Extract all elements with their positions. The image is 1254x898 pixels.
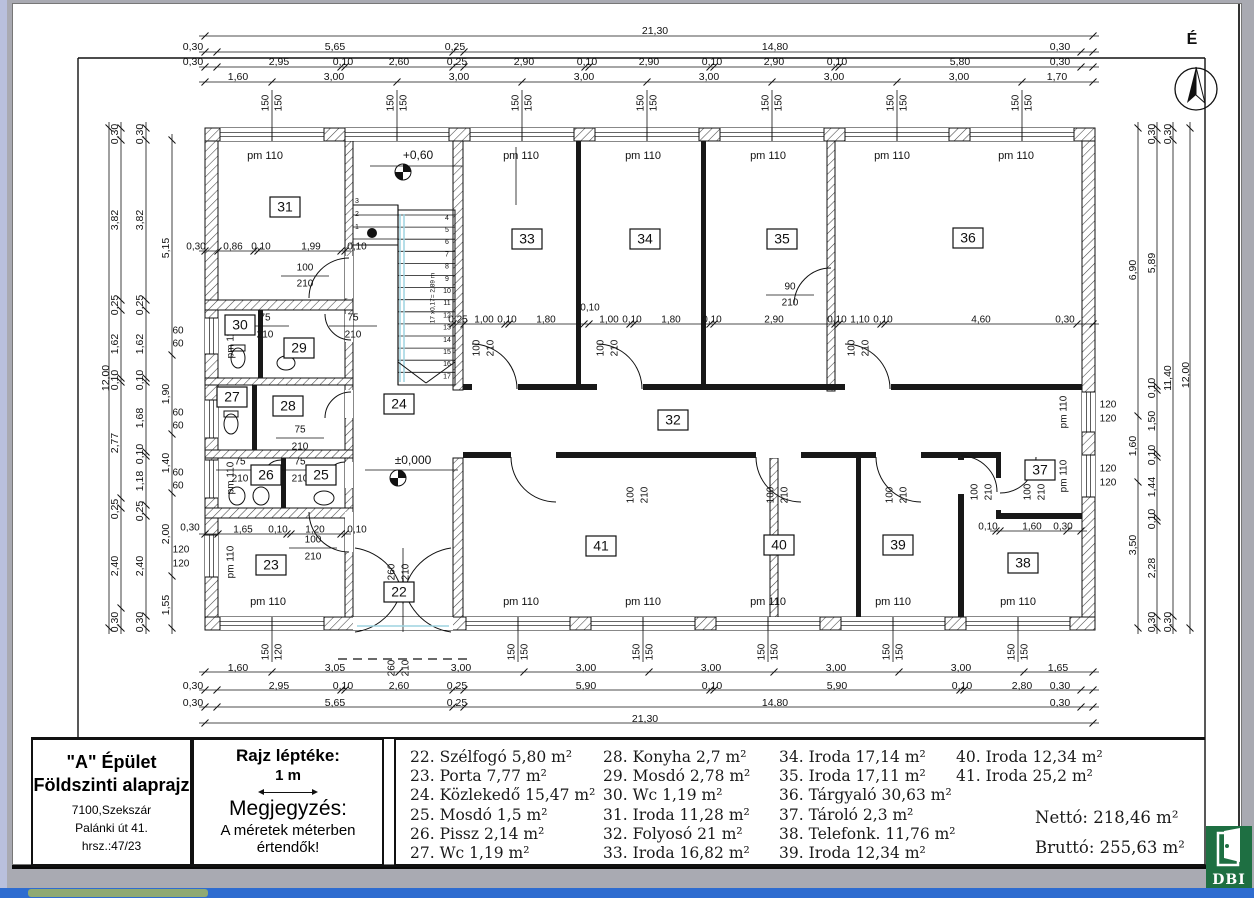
dim-label: 3,00 — [826, 662, 847, 674]
dim-label: 100 — [970, 483, 981, 500]
dim-label: 60 — [172, 408, 184, 419]
dim-label: 3,00 — [701, 662, 722, 674]
legend-column: 40. Iroda 12,34 m²41. Iroda 25,2 m² — [956, 748, 1103, 786]
dim-label: 1,40 — [160, 453, 172, 474]
room-number: 31 — [277, 199, 293, 215]
room-number: 39 — [890, 537, 906, 553]
dim-label: 0,30 — [134, 612, 146, 633]
level-label: +0,60 — [403, 148, 434, 162]
taskbar-button[interactable] — [28, 889, 208, 897]
dim-label: 75 — [259, 313, 271, 324]
dim-label: 5,90 — [576, 680, 597, 692]
dim-label: 150 — [886, 94, 897, 111]
level-label: ±0,000 — [395, 453, 432, 467]
dim-label: 100 — [305, 535, 322, 546]
dim-label: 0,10 — [952, 680, 973, 692]
dim-label: pm 110 — [1059, 395, 1070, 428]
dim-label: 0,10 — [702, 680, 723, 692]
dim-label: 2,28 — [1146, 558, 1158, 579]
dim-label: 0,10 — [1146, 509, 1158, 530]
dim-label: 0,30 — [1050, 697, 1071, 709]
dim-label: 1,50 — [1146, 411, 1158, 432]
dim-label: 0,25 — [109, 499, 121, 520]
dim-label: 0,25 — [447, 680, 468, 692]
legend-item: 26. Pissz 2,14 m² — [410, 825, 595, 844]
dim-label: 2,00 — [160, 524, 172, 545]
room-number: 35 — [774, 231, 790, 247]
dim-label: 150 — [386, 94, 397, 111]
dim-label: 60 — [172, 339, 184, 350]
dim-label: 1,99 — [301, 242, 321, 253]
dim-label: 0,10 — [347, 525, 367, 536]
dim-label: 210 — [257, 330, 274, 341]
room-number: 36 — [960, 230, 976, 246]
dim-label: 3,00 — [451, 662, 472, 674]
room-number: 23 — [263, 557, 279, 573]
dim-label: 2,90 — [514, 56, 535, 68]
dim-label: 2,40 — [109, 556, 121, 577]
dim-label: 150 — [261, 643, 272, 660]
legend-item: 31. Iroda 11,28 m² — [603, 806, 750, 825]
dim-label: 150 — [1007, 643, 1018, 660]
dim-label: pm 110 — [247, 150, 283, 162]
dimensions-top: 21,300,305,650,2514,800,300,302,950,102,… — [183, 25, 1071, 83]
room-number: 22 — [391, 584, 407, 600]
room-number: 41 — [593, 538, 609, 554]
dim-label: 1,62 — [109, 334, 121, 355]
dim-label: 1,60 — [1127, 436, 1139, 457]
dim-label: 120 — [274, 643, 285, 660]
dim-label: 260 — [387, 659, 398, 676]
annotation-label: 11 — [443, 300, 450, 307]
dim-label: 100 — [626, 486, 637, 503]
dim-label: 120 — [173, 559, 190, 570]
parapet-labels: pm 110pm 110pm 110pm 110pm 110pm 110pm 1… — [247, 150, 1036, 608]
dim-label: 100 — [766, 486, 777, 503]
annotation-label: 4 — [445, 215, 449, 222]
dim-label: 120 — [1100, 464, 1117, 475]
dim-label: 1,62 — [134, 334, 146, 355]
dim-label: 2,90 — [764, 56, 785, 68]
dim-label: pm 110 — [503, 150, 539, 162]
dim-label: 2,95 — [269, 56, 290, 68]
legend-item: 37. Tároló 2,3 m² — [779, 806, 956, 825]
dim-label: 0,25 — [447, 56, 468, 68]
dim-label: 210 — [297, 279, 314, 290]
dim-label: 0,30 — [183, 41, 204, 53]
note-line1: A méretek méterben — [194, 822, 382, 839]
dim-label: 0,30 — [1050, 41, 1071, 53]
dim-label: 150 — [636, 94, 647, 111]
dim-label: 1,00 — [599, 315, 619, 326]
dim-label: 3,05 — [325, 662, 346, 674]
annotation-label: 8 — [445, 264, 449, 271]
dim-label: 5,15 — [160, 238, 172, 259]
dim-label: 0,10 — [978, 522, 998, 533]
dim-label: 150 — [511, 94, 522, 111]
legend-item: 34. Iroda 17,14 m² — [779, 748, 956, 767]
dbi-logo-text: DBI — [1206, 872, 1252, 888]
dim-label: 0,25 — [448, 315, 468, 326]
title-block: "A" Épület Földszinti alaprajz 7100,Szek… — [31, 738, 192, 866]
dim-label: 210 — [899, 486, 910, 503]
legend-item: 32. Folyosó 21 m² — [603, 825, 750, 844]
north-label: É — [1187, 29, 1198, 48]
leader-lines — [272, 90, 1022, 662]
dim-label: 3,00 — [574, 71, 595, 83]
dim-label: 3,82 — [134, 210, 146, 231]
dim-label: 150 — [895, 643, 906, 660]
dim-label: 0,25 — [445, 41, 466, 53]
dim-label: pm 110 — [874, 150, 910, 162]
dim-label: 3,00 — [949, 71, 970, 83]
dim-label: 150 — [261, 94, 272, 111]
dim-label: 150 — [1020, 643, 1031, 660]
dim-label: 210 — [486, 339, 497, 356]
annotation-label: 15 — [443, 349, 451, 356]
net-area-total: Nettó: 218,46 m² — [1035, 808, 1178, 827]
dim-label: 14,80 — [762, 41, 788, 53]
dim-label: 60 — [172, 326, 184, 337]
dim-label: 0,30 — [183, 56, 204, 68]
room-number: 33 — [519, 231, 535, 247]
dim-label: 60 — [172, 481, 184, 492]
dim-label: 3,00 — [699, 71, 720, 83]
dim-label: 6,90 — [1127, 260, 1139, 281]
legend-item: 23. Porta 7,77 m² — [410, 767, 595, 786]
dbi-logo: DBI — [1206, 826, 1252, 890]
annotation-label: 14 — [443, 337, 451, 344]
dim-label: 3,00 — [576, 662, 597, 674]
annotation-label: 1 — [355, 224, 359, 231]
drawing-name: Földszinti alaprajz — [33, 775, 190, 796]
dim-label: 2,90 — [764, 315, 784, 326]
door-icon — [1206, 826, 1252, 872]
dim-label: 120 — [1100, 478, 1117, 489]
room-number: 34 — [637, 231, 653, 247]
dim-label: 0,10 — [134, 370, 146, 391]
dim-label: 100 — [596, 339, 607, 356]
legend-item: 38. Telefonk. 11,76 m² — [779, 825, 956, 844]
annotation-label: 2 — [355, 211, 359, 218]
room-number: 28 — [280, 398, 296, 414]
note-line2: értendők! — [194, 839, 382, 856]
dim-label: 150 — [882, 643, 893, 660]
dim-label: 150 — [399, 94, 410, 111]
dim-label: 3,00 — [951, 662, 972, 674]
annotation-label: 7 — [445, 251, 449, 258]
dim-label: 12,00 — [1180, 362, 1192, 388]
dim-label: pm 110 — [250, 596, 286, 608]
dim-label: 2,60 — [389, 680, 410, 692]
dim-label: 1,60 — [228, 662, 249, 674]
dim-label: 210 — [984, 483, 995, 500]
legend-item: 28. Konyha 2,7 m² — [603, 748, 750, 767]
dim-label: 1,18 — [134, 471, 146, 492]
dim-label: 0,10 — [827, 315, 847, 326]
dim-label: 2,80 — [1012, 680, 1033, 692]
dim-label: 260 — [387, 563, 398, 580]
parcel-number: hrsz.:47/23 — [33, 839, 190, 853]
legend-item: 29. Mosdó 2,78 m² — [603, 767, 750, 786]
room-number: 38 — [1015, 555, 1031, 571]
dim-label: 210 — [401, 659, 412, 676]
legend-item: 36. Tárgyaló 30,63 m² — [779, 786, 956, 805]
dim-label: 210 — [861, 339, 872, 356]
dim-label: 3,00 — [324, 71, 345, 83]
dim-label: 150 — [507, 643, 518, 660]
legend-item: 33. Iroda 16,82 m² — [603, 844, 750, 863]
address-street: Palánki út 41. — [33, 821, 190, 835]
dim-label: 120 — [1100, 414, 1117, 425]
dim-label: 60 — [172, 421, 184, 432]
legend-item: 41. Iroda 25,2 m² — [956, 767, 1103, 786]
dim-label: 0,30 — [1050, 56, 1071, 68]
dim-label: 0,10 — [333, 56, 354, 68]
dim-label: 210 — [1037, 483, 1048, 500]
annotation-label: 17 — [443, 373, 451, 380]
dim-label: 0,10 — [873, 315, 893, 326]
annotation-label: 9 — [445, 276, 449, 283]
dim-label: 1,00 — [474, 315, 494, 326]
dim-label: 0,30 — [1162, 124, 1174, 145]
legend-item: 39. Iroda 12,34 m² — [779, 844, 956, 863]
dim-label: 14,80 — [762, 697, 788, 709]
dim-label: pm 110 — [1000, 596, 1036, 608]
dim-label: 0,30 — [183, 697, 204, 709]
dim-label: 100 — [472, 339, 483, 356]
dim-label: 0,30 — [1146, 124, 1158, 145]
dimensions-right: 6,901,603,500,305,890,101,500,101,440,10… — [1127, 124, 1192, 633]
legend-column: 34. Iroda 17,14 m²35. Iroda 17,11 m²36. … — [779, 748, 956, 863]
dim-label: 150 — [761, 94, 772, 111]
dim-label: 1,10 — [850, 315, 870, 326]
window-size-labels: 1501501501501501501501501501501501501501… — [172, 94, 1116, 660]
dim-label: 21,30 — [632, 713, 658, 725]
room-number: 24 — [391, 396, 407, 412]
dim-label: 2,77 — [109, 433, 121, 454]
dim-label: 0,10 — [580, 303, 600, 314]
dim-label: 0,10 — [134, 444, 146, 465]
dim-label: 1,60 — [228, 71, 249, 83]
dim-label: 0,30 — [1055, 315, 1075, 326]
legend-item: 24. Közlekedő 15,47 m² — [410, 786, 595, 805]
dimensions-bottom: 1,603,053,003,003,003,003,001,650,302,95… — [183, 662, 1071, 725]
dim-label: 75 — [234, 457, 246, 468]
dim-label: 100 — [847, 339, 858, 356]
dim-label: 5,65 — [325, 41, 346, 53]
dim-label: 210 — [345, 330, 362, 341]
annotation-label: 10 — [443, 288, 451, 295]
address-city: 7100,Szekszár — [33, 803, 190, 817]
room-number: 32 — [665, 412, 681, 428]
dim-label: 120 — [173, 545, 190, 556]
dim-label: 0,10 — [251, 242, 271, 253]
dim-label: 1,44 — [1146, 477, 1158, 498]
dim-label: 210 — [401, 563, 412, 580]
annotation-label: 16 — [443, 361, 451, 368]
dim-label: 1,90 — [160, 384, 172, 405]
room-number: 27 — [224, 389, 240, 405]
dim-label: 210 — [782, 298, 799, 309]
room-number: 26 — [258, 467, 274, 483]
dim-label: pm 110 — [750, 596, 786, 608]
dim-label: 0,10 — [577, 56, 598, 68]
dim-label: 150 — [524, 94, 535, 111]
dim-label: 210 — [640, 486, 651, 503]
dim-label: 1,68 — [134, 408, 146, 429]
dim-label: 2,40 — [134, 556, 146, 577]
dim-label: 100 — [1023, 483, 1034, 500]
dim-label: 0,30 — [109, 612, 121, 633]
dim-label: 5,90 — [827, 680, 848, 692]
dim-label: 150 — [1011, 94, 1022, 111]
dim-label: 120 — [1100, 400, 1117, 411]
dim-label: 0,30 — [134, 124, 146, 145]
dim-label: 3,00 — [824, 71, 845, 83]
room-number: 25 — [313, 467, 329, 483]
dim-label: 21,30 — [642, 25, 668, 37]
legend-item: 35. Iroda 17,11 m² — [779, 767, 956, 786]
dim-label: 0,86 — [223, 242, 243, 253]
dim-label: 2,90 — [639, 56, 660, 68]
room-number: 30 — [232, 317, 248, 333]
legend-item: 27. Wc 1,19 m² — [410, 844, 595, 863]
room-number: 37 — [1032, 462, 1048, 478]
legend-column: 22. Szélfogó 5,80 m²23. Porta 7,77 m²24.… — [410, 748, 595, 863]
dim-label: 0,10 — [702, 56, 723, 68]
dim-label: 4,60 — [971, 315, 991, 326]
dim-label: 100 — [885, 486, 896, 503]
dim-label: pm 110 — [750, 150, 786, 162]
dim-label: 0,30 — [186, 242, 206, 253]
dim-label: 11,40 — [1162, 365, 1174, 391]
dim-label: 210 — [780, 486, 791, 503]
door-swings — [263, 258, 1036, 632]
scale-bar-icon — [260, 784, 316, 793]
dim-label: 100 — [297, 263, 314, 274]
dim-label: 75 — [347, 313, 359, 324]
dim-label: 60 — [172, 468, 184, 479]
dim-label: 75 — [294, 457, 306, 468]
legend-column: 28. Konyha 2,7 m²29. Mosdó 2,78 m²30. Wc… — [603, 748, 750, 863]
dim-label: 0,10 — [1146, 445, 1158, 466]
dim-label: 210 — [292, 442, 309, 453]
taskbar — [0, 888, 1254, 898]
dim-label: pm 110 — [226, 545, 237, 578]
dim-label: 0,10 — [109, 370, 121, 391]
dim-label: 0,25 — [109, 295, 121, 316]
annotation-label: 5 — [445, 227, 449, 234]
dim-label: 90 — [784, 282, 796, 293]
dim-label: 0,30 — [1053, 522, 1073, 533]
annotation-label: 6 — [445, 239, 449, 246]
dim-label: 1,60 — [1022, 522, 1042, 533]
stair-formula: 17 x0,17= 2,89 m — [430, 273, 437, 323]
walls — [205, 128, 1095, 630]
legend-item: 25. Mosdó 1,5 m² — [410, 806, 595, 825]
dim-label: 210 — [305, 552, 322, 563]
dim-label: 0,10 — [702, 315, 722, 326]
dim-label: 3,82 — [109, 210, 121, 231]
dim-label: pm 110 — [875, 596, 911, 608]
dim-label: 150 — [274, 94, 285, 111]
dim-label: 0,30 — [180, 523, 200, 534]
dim-label: 2,95 — [269, 680, 290, 692]
room-legend: Nettó: 218,46 m² Bruttó: 255,63 m² 22. S… — [403, 740, 1203, 866]
dim-label: 150 — [757, 643, 768, 660]
dim-label: 1,80 — [536, 315, 556, 326]
dim-label: 1,55 — [160, 595, 172, 616]
room-number: 40 — [771, 537, 787, 553]
gross-area-total: Bruttó: 255,63 m² — [1035, 838, 1185, 857]
annotation-label: 13 — [443, 325, 451, 332]
dim-label: 150 — [899, 94, 910, 111]
dim-label: 210 — [610, 339, 621, 356]
dim-label: 5,80 — [950, 56, 971, 68]
dim-label: 5,65 — [325, 697, 346, 709]
dim-label: 1,65 — [1048, 662, 1069, 674]
dim-label: 0,10 — [333, 680, 354, 692]
dim-label: 150 — [632, 643, 643, 660]
dim-label: 150 — [1024, 94, 1035, 111]
screenshot-root: { "compass": {"north_label": "É"}, "titl… — [0, 0, 1254, 898]
dim-label: 150 — [520, 643, 531, 660]
dim-label: 1,80 — [661, 315, 681, 326]
dim-label: 1,65 — [233, 525, 253, 536]
dim-label: 0,30 — [1050, 680, 1071, 692]
legend-item: 30. Wc 1,19 m² — [603, 786, 750, 805]
dim-label: 0,30 — [1162, 612, 1174, 633]
dim-label: pm 110 — [503, 596, 539, 608]
room-number: 29 — [291, 340, 307, 356]
dim-label: pm 110 — [1059, 459, 1070, 492]
dim-label: 3,00 — [449, 71, 470, 83]
accent-lines — [338, 626, 470, 659]
dim-label: pm 110 — [625, 150, 661, 162]
dim-label: 0,30 — [183, 680, 204, 692]
dim-label: 1,70 — [1047, 71, 1068, 83]
legend-item: 22. Szélfogó 5,80 m² — [410, 748, 595, 767]
dim-label: 0,10 — [268, 525, 288, 536]
legend-item: 40. Iroda 12,34 m² — [956, 748, 1103, 767]
dim-label: pm 110 — [998, 150, 1034, 162]
dim-label: 0,10 — [827, 56, 848, 68]
dim-label: 0,30 — [1146, 612, 1158, 633]
dim-label: 0,10 — [1146, 378, 1158, 399]
north-compass: É — [1175, 29, 1217, 110]
room-numbers: 3130292728242625232233343536324140393738 — [217, 197, 1055, 602]
note-title: Megjegyzés: — [194, 797, 382, 821]
dim-label: 0,10 — [497, 315, 517, 326]
dim-label: 0,25 — [134, 501, 146, 522]
dim-label: 150 — [645, 643, 656, 660]
dim-label: 0,10 — [347, 242, 367, 253]
dim-label: 75 — [294, 425, 306, 436]
annotation-label: 3 — [355, 198, 359, 205]
scale-value: 1 m — [194, 767, 382, 784]
dim-label: 150 — [649, 94, 660, 111]
scale-title: Rajz léptéke: — [194, 746, 382, 766]
dim-label: pm 110 — [625, 596, 661, 608]
dim-label: 2,60 — [389, 56, 410, 68]
dim-label: 0,25 — [447, 697, 468, 709]
dim-label: 0,25 — [134, 295, 146, 316]
dim-label: 5,89 — [1146, 253, 1158, 274]
dim-label: 150 — [774, 94, 785, 111]
dim-label: 210 — [232, 474, 249, 485]
dimensions-left: 12,000,303,820,251,620,102,770,252,400,3… — [100, 124, 172, 633]
